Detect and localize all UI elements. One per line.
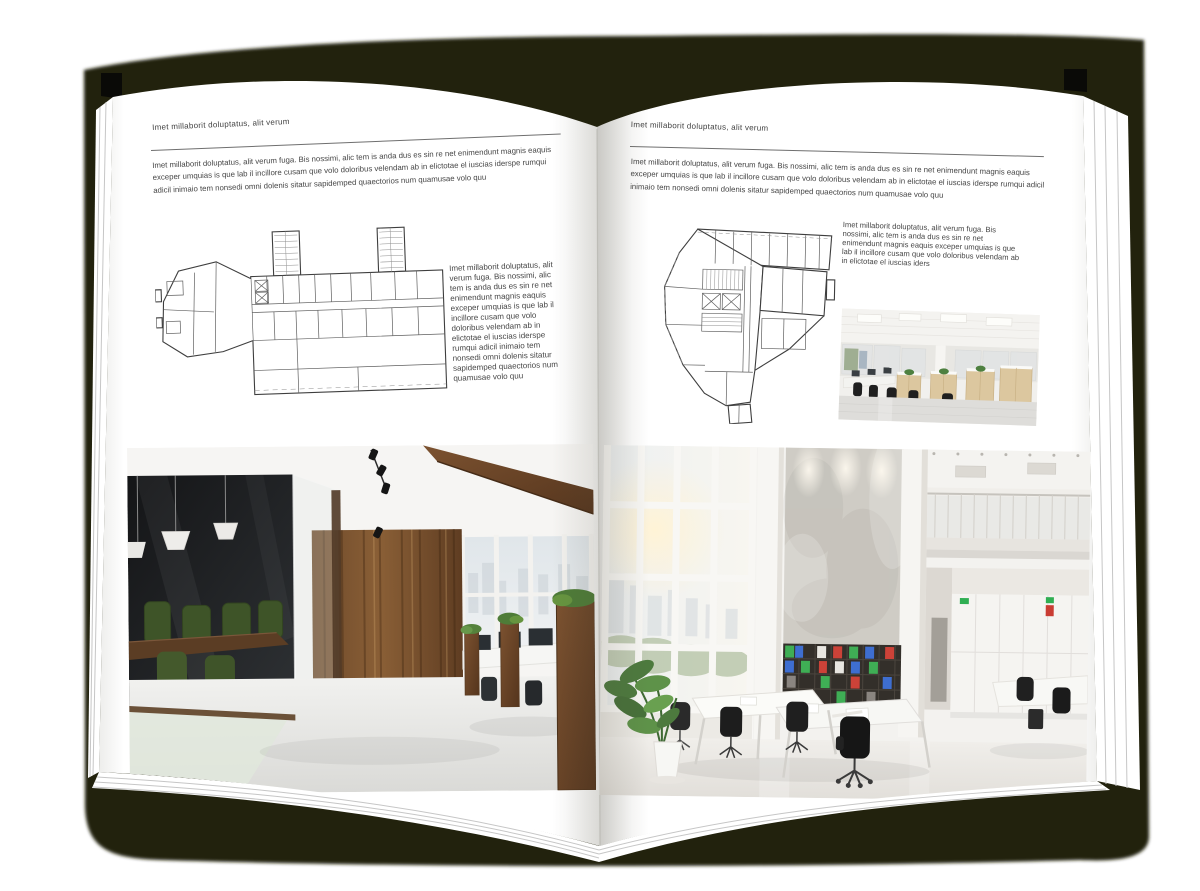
left-side-text: Imet millaborit doluptatus, alit verum f… bbox=[449, 260, 566, 384]
right-intro-paragraph: Imet millaborit doluptatus, alit verum f… bbox=[630, 156, 1045, 205]
cover-corner-left bbox=[101, 73, 122, 99]
left-intro-paragraph: Imet millaborit doluptatus, alit verum f… bbox=[152, 143, 565, 197]
concrete-wall bbox=[775, 445, 918, 645]
floor-plan-right bbox=[642, 220, 840, 426]
office-chair bbox=[481, 677, 497, 701]
photo-atrium-office bbox=[599, 445, 1091, 802]
floor-plan-left bbox=[153, 220, 451, 414]
right-header-rule bbox=[630, 146, 1044, 157]
right-side-text: Imet millaborit doluptatus, alit verum f… bbox=[841, 221, 1020, 272]
photo-loft-office bbox=[127, 444, 596, 794]
right-page-title: Imet millaborit doluptatus, alit verum bbox=[631, 120, 769, 133]
photo-open-office-small bbox=[838, 308, 1040, 427]
mezzanine bbox=[902, 449, 1090, 560]
exit-sign bbox=[960, 598, 969, 604]
office-chair bbox=[1016, 677, 1033, 701]
office-chair bbox=[525, 680, 542, 705]
fire-extinguisher-box bbox=[1046, 605, 1054, 616]
left-page-title: Imet millaborit doluptatus, alit verum bbox=[152, 117, 290, 132]
office-chair bbox=[1052, 687, 1070, 713]
exit-sign bbox=[1046, 597, 1054, 603]
cover-corner-right bbox=[1064, 69, 1087, 92]
ceiling bbox=[841, 309, 1040, 349]
waste-bin bbox=[1028, 709, 1043, 729]
brochure-mockup: Imet millaborit doluptatus, alit verum I… bbox=[0, 0, 1200, 891]
